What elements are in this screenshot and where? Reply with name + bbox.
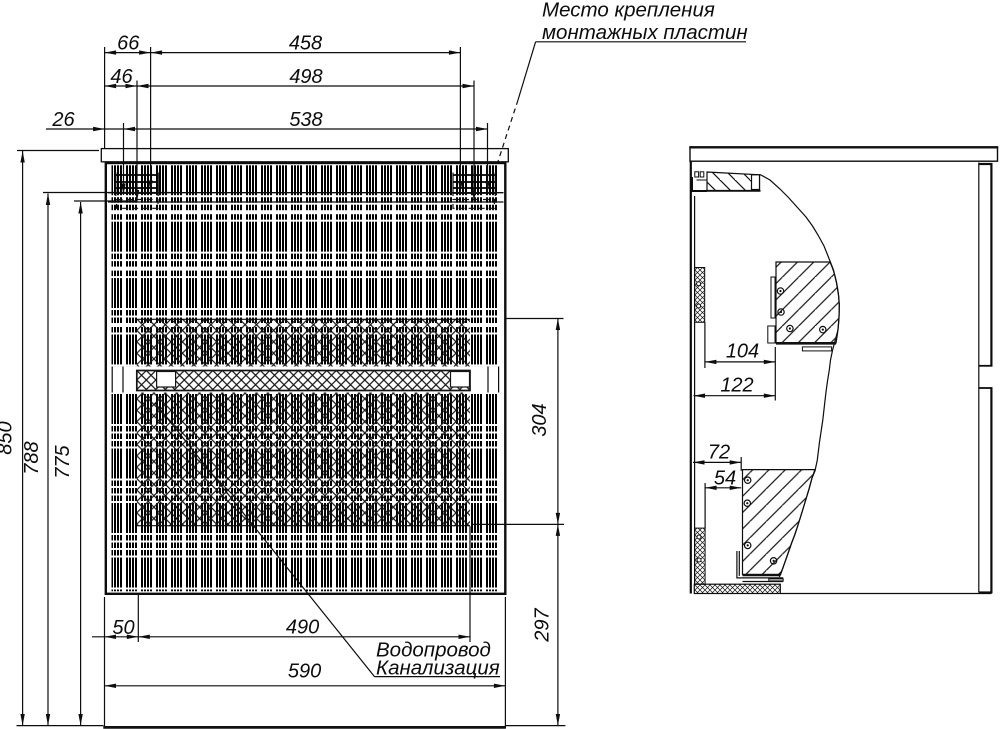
svg-text:46: 46 xyxy=(110,66,133,88)
svg-text:788: 788 xyxy=(21,441,43,474)
svg-text:26: 26 xyxy=(51,109,75,131)
svg-text:104: 104 xyxy=(726,341,759,363)
svg-text:538: 538 xyxy=(289,109,322,131)
svg-text:590: 590 xyxy=(288,661,321,683)
svg-text:50: 50 xyxy=(112,617,134,639)
svg-text:498: 498 xyxy=(289,66,322,88)
svg-text:458: 458 xyxy=(289,33,322,55)
svg-text:490: 490 xyxy=(286,617,319,639)
svg-text:297: 297 xyxy=(532,607,554,642)
svg-text:775: 775 xyxy=(52,444,74,478)
svg-text:304: 304 xyxy=(529,403,551,436)
svg-text:122: 122 xyxy=(720,375,753,397)
svg-text:66: 66 xyxy=(117,33,140,55)
svg-text:Место крепления: Место крепления xyxy=(542,0,715,22)
svg-text:монтажных пластин: монтажных пластин xyxy=(542,21,748,44)
svg-text:72: 72 xyxy=(708,442,730,464)
svg-text:54: 54 xyxy=(714,468,736,490)
svg-text:850: 850 xyxy=(0,421,17,454)
